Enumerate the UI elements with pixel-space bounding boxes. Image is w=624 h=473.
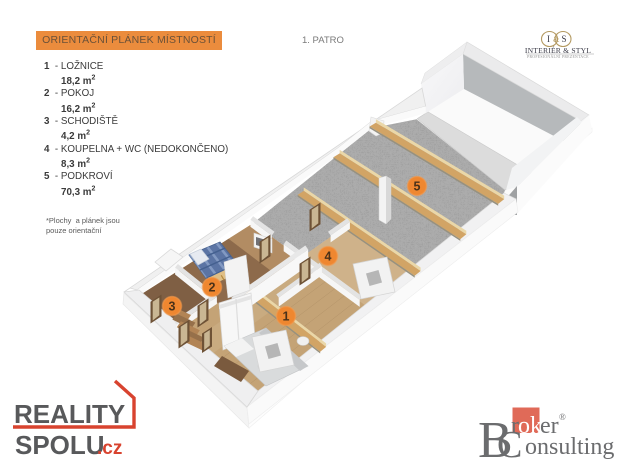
svg-text:&: &: [553, 35, 560, 44]
svg-text:onsulting: onsulting: [525, 434, 614, 460]
svg-text:SPOLU: SPOLU: [15, 430, 105, 460]
svg-text:®: ®: [559, 412, 566, 422]
svg-text:PROFESIONÁLNÍ PREZENTACE: PROFESIONÁLNÍ PREZENTACE: [527, 54, 589, 59]
svg-text:3: 3: [169, 299, 176, 313]
svg-text:5: 5: [414, 179, 421, 193]
svg-text:.cz: .cz: [97, 438, 122, 459]
svg-text:I: I: [547, 34, 550, 44]
svg-text:4: 4: [325, 249, 332, 263]
svg-text:S: S: [561, 34, 566, 44]
svg-text:INTERIÉR & STYL: INTERIÉR & STYL: [525, 45, 591, 55]
svg-text:2: 2: [209, 280, 216, 294]
svg-text:C: C: [497, 424, 522, 462]
svg-text:1: 1: [283, 309, 290, 323]
svg-text:REALITY: REALITY: [14, 399, 125, 429]
